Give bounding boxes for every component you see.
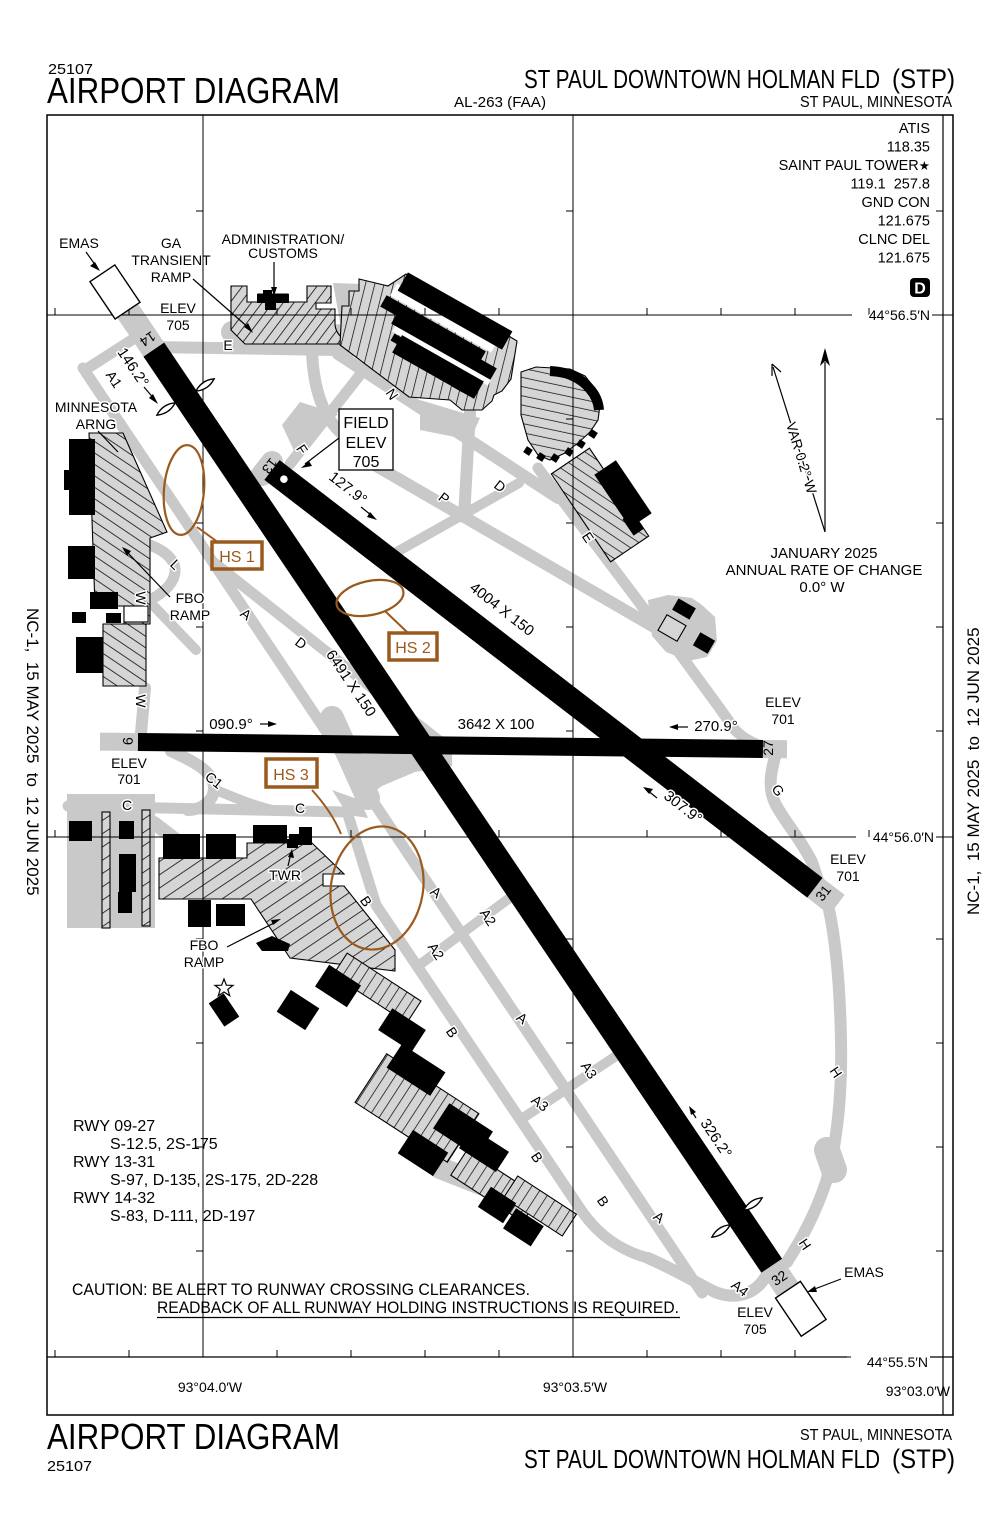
svg-text:ELEV: ELEV [346,435,387,452]
svg-text:ST PAUL DOWNTOWN HOLMAN FLD: ST PAUL DOWNTOWN HOLMAN FLD [524,1444,880,1474]
svg-text:25107: 25107 [47,1458,92,1475]
svg-text:44°56.5′N: 44°56.5′N [869,307,930,323]
svg-text:RAMP: RAMP [151,269,191,285]
svg-text:W: W [133,694,149,708]
svg-text:GA: GA [161,235,182,251]
svg-text:44°56.0′N: 44°56.0′N [873,829,934,845]
svg-text:CAUTION: BE ALERT TO RUNWAY CR: CAUTION: BE ALERT TO RUNWAY CROSSING CLE… [72,1281,530,1299]
svg-text:ELEV: ELEV [111,755,147,771]
svg-text:S-83, D-111, 2D-197: S-83, D-111, 2D-197 [110,1208,255,1225]
svg-text:RWY 13-31: RWY 13-31 [73,1154,155,1171]
svg-text:RAMP: RAMP [170,607,210,623]
svg-text:S-97, D-135, 2S-175, 2D-228: S-97, D-135, 2S-175, 2D-228 [110,1172,318,1189]
svg-text:9: 9 [120,737,136,745]
svg-text:HS 1: HS 1 [219,549,255,566]
svg-text:EMAS: EMAS [844,1264,884,1280]
svg-text:AIRPORT DIAGRAM: AIRPORT DIAGRAM [47,70,340,111]
svg-text:NC-1, 15 MAY 2025 to 12 JUN: NC-1, 15 MAY 2025 to 12 JUN 2025 [23,608,42,896]
svg-text:93°04.0′W: 93°04.0′W [178,1379,243,1395]
svg-text:FBO: FBO [176,590,205,606]
svg-text:E: E [223,337,232,353]
svg-text:3642 X 100: 3642 X 100 [458,716,535,733]
svg-text:AIRPORT DIAGRAM: AIRPORT DIAGRAM [47,1416,340,1457]
svg-text:090.9°: 090.9° [209,716,253,733]
svg-text:93°03.5′W: 93°03.5′W [543,1379,608,1395]
svg-text:ST PAUL DOWNTOWN HOLMAN FLD: ST PAUL DOWNTOWN HOLMAN FLD [524,64,880,94]
svg-text:B: B [594,1193,612,1210]
svg-text:118.35: 118.35 [887,140,930,156]
svg-text:705: 705 [353,454,380,471]
svg-text:TRANSIENT: TRANSIENT [131,252,211,268]
svg-text:93°03.0′W: 93°03.0′W [886,1383,951,1399]
svg-text:121.675: 121.675 [878,251,930,267]
svg-text:ST PAUL, MINNESOTA: ST PAUL, MINNESOTA [800,94,952,111]
svg-text:CUSTOMS: CUSTOMS [248,245,318,261]
svg-text:ELEV: ELEV [765,694,801,710]
svg-text:44°55.5′N: 44°55.5′N [867,1354,928,1370]
svg-text:FIELD: FIELD [343,415,388,432]
svg-text:B: B [443,1024,461,1041]
svg-text:JANUARY 2025: JANUARY 2025 [770,545,877,562]
svg-text:AL-263 (FAA): AL-263 (FAA) [454,94,546,111]
svg-text:ARNG: ARNG [76,416,116,432]
svg-text:ELEV: ELEV [830,851,866,867]
svg-text:C: C [295,800,305,816]
svg-text:701: 701 [117,771,141,787]
svg-text:NC-1, 15 MAY 2025 to 12 JUN: NC-1, 15 MAY 2025 to 12 JUN 2025 [964,627,983,915]
svg-text:CLNC DEL: CLNC DEL [858,232,930,248]
svg-text:27: 27 [760,740,776,756]
svg-text:ELEV: ELEV [160,300,196,316]
svg-text:121.675: 121.675 [878,214,930,230]
svg-text:ANNUAL RATE OF CHANGE: ANNUAL RATE OF CHANGE [726,562,923,579]
svg-text:HS 2: HS 2 [395,640,431,657]
svg-text:GND CON: GND CON [862,195,930,211]
svg-text:RWY 09-27: RWY 09-27 [73,1118,155,1135]
svg-text:MINNESOTA: MINNESOTA [55,399,138,415]
svg-text:TWR: TWR [269,867,301,883]
svg-text:RWY 14-32: RWY 14-32 [73,1190,155,1207]
svg-text:READBACK OF ALL RUNWAY HOLDING: READBACK OF ALL RUNWAY HOLDING INSTRUCTI… [157,1299,679,1317]
svg-text:FBO: FBO [190,937,219,953]
svg-text:(STP): (STP) [892,64,955,94]
svg-text:HS 3: HS 3 [273,767,309,784]
svg-text:C: C [122,797,132,813]
svg-text:(STP): (STP) [892,1444,955,1474]
svg-text:705: 705 [166,317,190,333]
svg-text:705: 705 [743,1321,767,1337]
svg-text:ELEV: ELEV [737,1304,773,1320]
svg-text:ST PAUL, MINNESOTA: ST PAUL, MINNESOTA [800,1427,952,1444]
svg-text:A1: A1 [103,368,126,391]
svg-text:VAR 0.2° W: VAR 0.2° W [783,420,820,496]
svg-text:RAMP: RAMP [184,954,224,970]
svg-text:W: W [133,591,149,605]
svg-text:701: 701 [836,868,860,884]
svg-text:270.9°: 270.9° [694,718,738,735]
svg-text:0.0° W: 0.0° W [799,579,845,596]
svg-text:S-12.5, 2S-175: S-12.5, 2S-175 [110,1136,218,1153]
svg-text:SAINT PAUL TOWER★: SAINT PAUL TOWER★ [779,158,930,174]
svg-text:701: 701 [771,711,795,727]
svg-text:D: D [914,281,926,298]
svg-text:119.1 257.8: 119.1 257.8 [850,177,930,193]
svg-text:EMAS: EMAS [59,235,99,251]
svg-text:ATIS: ATIS [899,121,930,137]
